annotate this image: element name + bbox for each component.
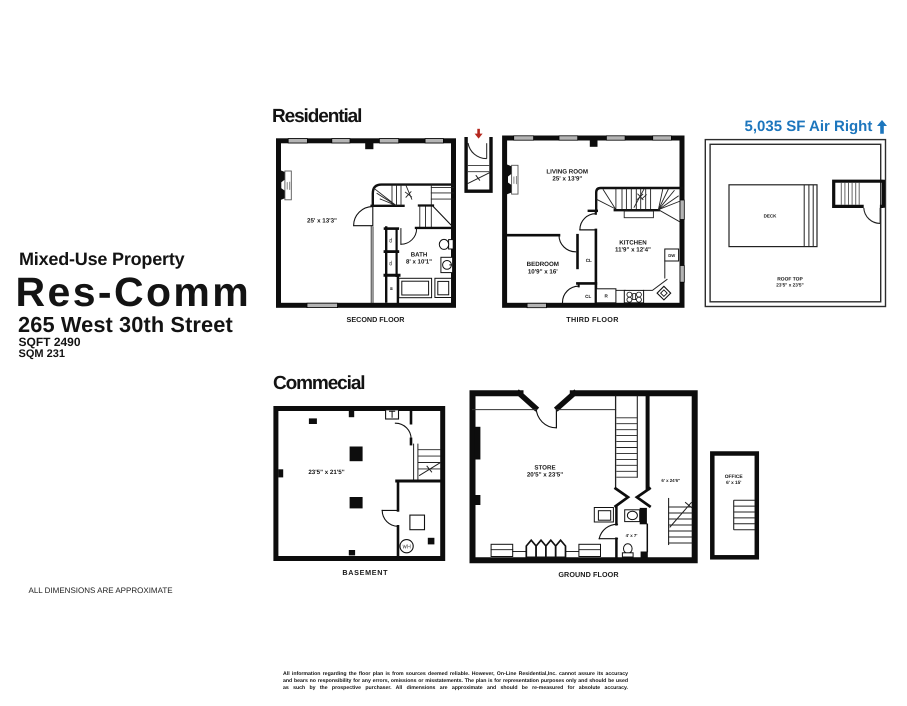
svg-text:6' x 24'6": 6' x 24'6" (661, 478, 680, 483)
svg-text:8' x 10'1": 8' x 10'1" (406, 259, 432, 266)
svg-text:CL: CL (585, 294, 591, 299)
svg-text:DECK: DECK (764, 214, 778, 219)
svg-text:BATH: BATH (411, 252, 427, 259)
svg-text:10'9" x 16': 10'9" x 16' (528, 268, 558, 275)
svg-text:6' x 15': 6' x 15' (726, 480, 741, 485)
svg-text:25' x 13'9": 25' x 13'9" (552, 176, 582, 183)
svg-text:4' x 7': 4' x 7' (626, 533, 638, 538)
svg-text:23'5" x 21'5": 23'5" x 21'5" (308, 469, 344, 476)
svg-text:BI: BI (389, 287, 393, 290)
svg-text:KITCHEN: KITCHEN (619, 239, 647, 246)
svg-text:CL: CL (586, 258, 592, 263)
svg-text:LIVING ROOM: LIVING ROOM (546, 168, 588, 175)
svg-text:ROOF TOP: ROOF TOP (777, 276, 803, 282)
svg-text:25' x 13'3": 25' x 13'3" (307, 217, 337, 224)
svg-text:OFFICE: OFFICE (725, 474, 744, 480)
svg-text:20'5" x 23'5": 20'5" x 23'5" (527, 471, 563, 478)
svg-text:DW: DW (668, 253, 675, 258)
svg-text:11'9" x 12'4": 11'9" x 12'4" (615, 247, 651, 254)
svg-text:CL: CL (389, 260, 393, 266)
svg-text:CL: CL (389, 237, 393, 243)
svg-text:23'5" x 23'5": 23'5" x 23'5" (776, 283, 804, 288)
svg-text:BEDROOM: BEDROOM (527, 261, 559, 268)
